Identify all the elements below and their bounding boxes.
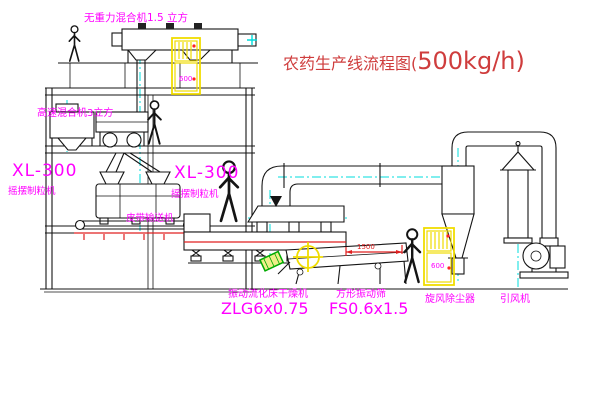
- discharge-container: [260, 252, 283, 271]
- dimension-text: 1500: [357, 243, 375, 251]
- drawing-title: 农药生产线流程图(500kg/h): [283, 47, 525, 75]
- label-granulator-left: 摇摆制粒机: [8, 185, 56, 197]
- label-sieve-model: FS0.6x1.5: [329, 299, 408, 318]
- vibrating-sieve: [278, 243, 408, 284]
- cabinet-bottom-text: 600: [431, 262, 444, 270]
- label-granulator-right: 摇摆制粒机: [171, 188, 219, 200]
- label-cyclone: 旋风除尘器: [425, 292, 475, 305]
- label-dryer-model: ZLG6x0.75: [221, 299, 309, 318]
- y-chute: [106, 153, 160, 172]
- title-capacity: 500kg/h): [417, 47, 525, 75]
- indicator-light: [446, 234, 449, 237]
- worker-figure-top: [69, 26, 79, 61]
- indicator-light: [447, 266, 450, 269]
- title-chinese: 农药生产线流程图(: [283, 54, 417, 73]
- label-xl300-left: XL-300: [12, 161, 77, 181]
- control-cabinet-bottom: 600: [424, 228, 454, 285]
- label-xl300-right: XL-300: [174, 163, 239, 183]
- indicator-light: [192, 77, 195, 80]
- exhaust-duct: [262, 163, 456, 207]
- gravity-free-mixer: [112, 23, 257, 112]
- dryer-top-ports: [253, 222, 335, 232]
- exhaust-stack: [500, 142, 536, 244]
- label-fan: 引风机: [500, 292, 530, 305]
- process-flow-drawing: 600: [0, 0, 600, 403]
- induced-draft-fan: [520, 238, 568, 278]
- worker-figure-level2: [148, 101, 161, 144]
- label-belt-conveyor: 皮带输送机: [126, 212, 174, 224]
- label-mixer2: 高速混合机3立方: [37, 106, 113, 119]
- cabinet-top-text: 600: [179, 75, 192, 83]
- flow-arrow-down: [270, 196, 282, 207]
- label-gravity-mixer: 无重力混合机1.5 立方: [84, 11, 188, 24]
- indicator-light: [192, 44, 195, 47]
- cyclone-separator: [442, 148, 474, 274]
